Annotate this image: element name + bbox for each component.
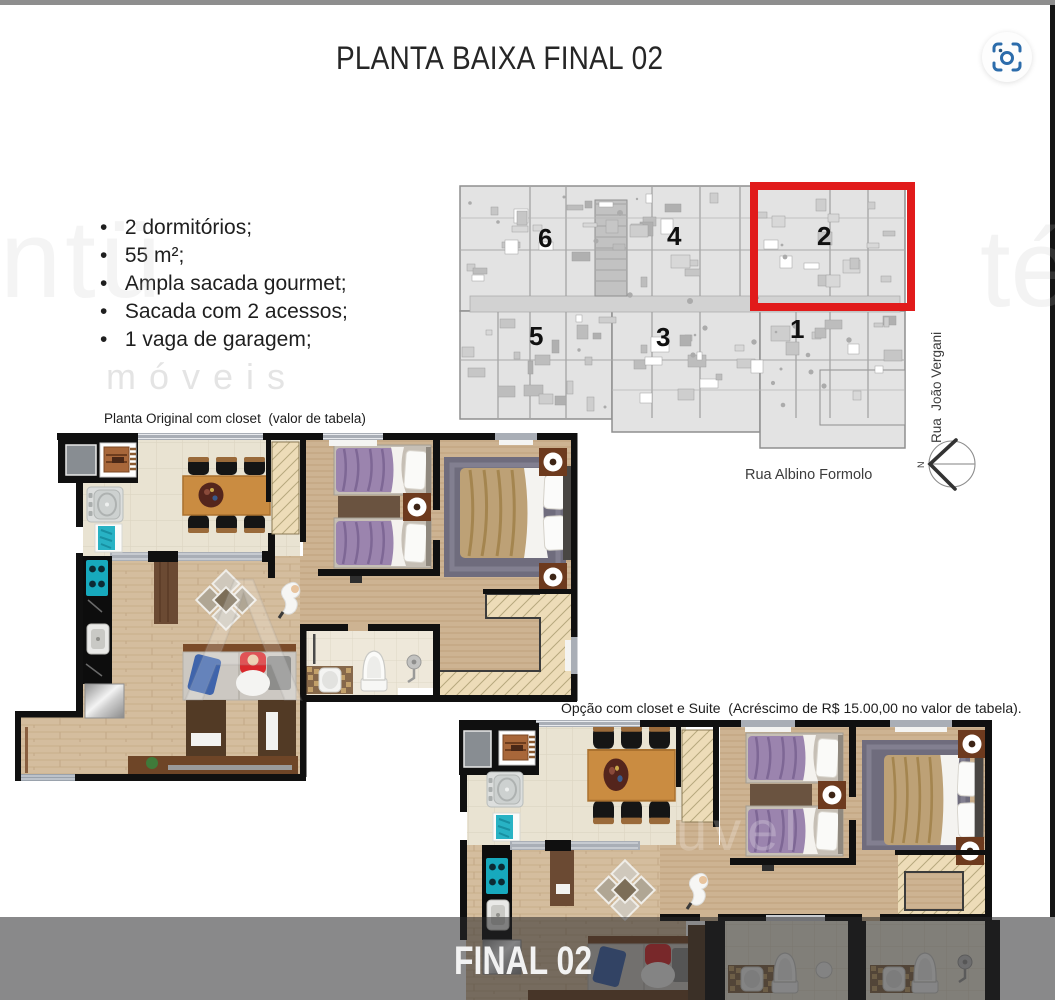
svg-text:4: 4 bbox=[667, 221, 682, 251]
svg-text:Rua João Vergani: Rua João Vergani bbox=[929, 332, 944, 443]
svg-text:uvel: uvel bbox=[676, 799, 803, 862]
svg-text:1: 1 bbox=[790, 314, 804, 344]
svg-text:2: 2 bbox=[817, 221, 831, 251]
svg-text:3: 3 bbox=[656, 322, 670, 352]
svg-text:6: 6 bbox=[538, 223, 552, 253]
svg-text:A: A bbox=[185, 543, 302, 738]
svg-text:5: 5 bbox=[529, 321, 543, 351]
svg-text:N: N bbox=[916, 462, 926, 469]
svg-text:Rua Albino Formolo: Rua Albino Formolo bbox=[745, 467, 872, 483]
